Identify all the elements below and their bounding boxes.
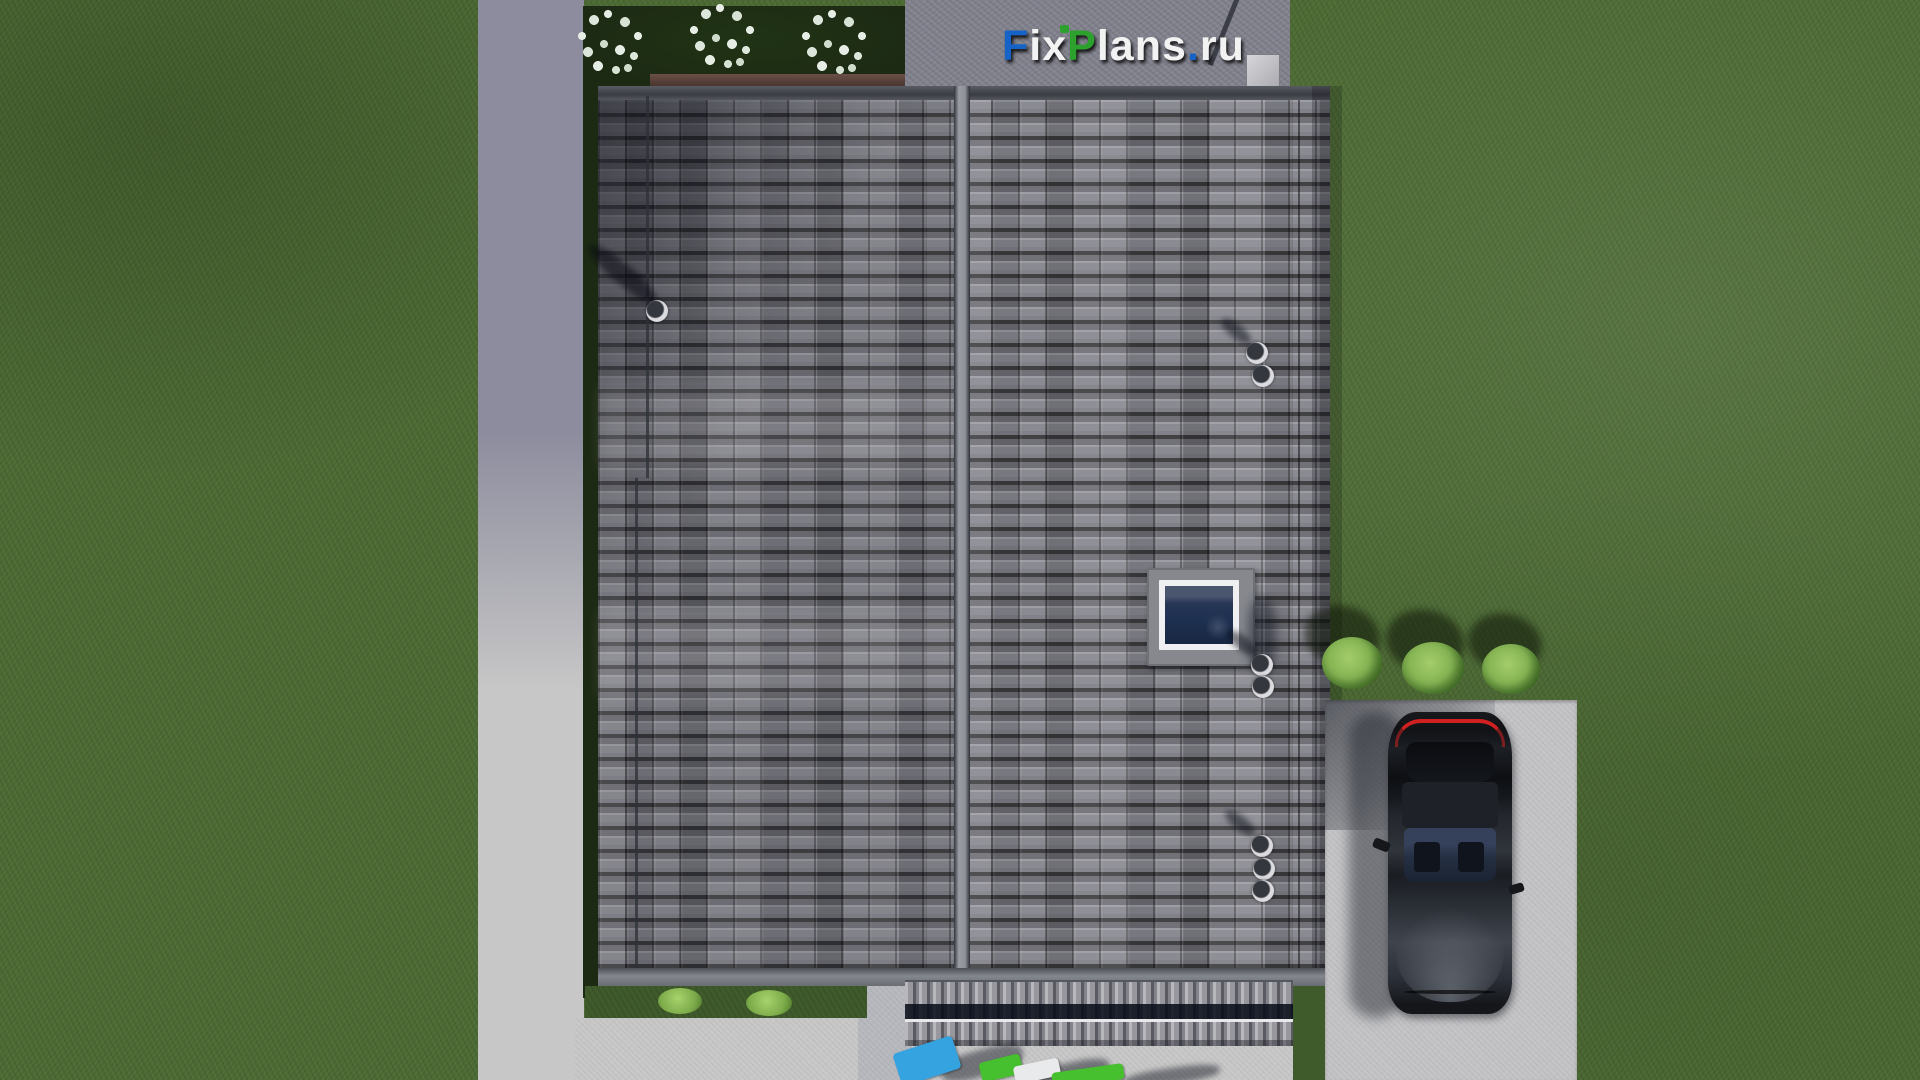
parked-sedan-top-view (1388, 712, 1512, 1014)
roof-vent-pipe (1252, 365, 1274, 387)
logo-letters-lans: lans (1097, 22, 1187, 71)
logo-letter-p: P (1067, 22, 1097, 71)
small-bush (746, 990, 792, 1016)
roof-vent-pipe (1246, 342, 1268, 364)
roof-vent-pipe (646, 300, 668, 322)
white-flower-shrub (794, 6, 880, 82)
car-windshield (1404, 828, 1496, 882)
roof-ridge-line (954, 86, 970, 986)
pergola-roof-shadow (905, 1004, 1293, 1019)
white-flower-shrub (682, 0, 768, 76)
car-roof-panel (1402, 782, 1498, 828)
car-rear-window (1406, 742, 1494, 782)
chimney-top (1246, 54, 1280, 90)
roof-slope-east (964, 100, 1330, 968)
logo-dot: . (1187, 22, 1200, 71)
driveway-vertical-path (478, 0, 584, 1080)
terrace-pergola-slats (905, 980, 1293, 1046)
skylight-glass (1165, 586, 1233, 644)
tiled-roof (598, 86, 1330, 986)
roof-vent-pipe (1251, 654, 1273, 676)
roof-gutter-line (1298, 100, 1300, 968)
skylight-window (1147, 568, 1255, 666)
grass-sliver (1293, 986, 1327, 1080)
skylight-frame (1159, 580, 1239, 650)
roof-light-reflection (598, 386, 958, 466)
aerial-house-render: FixPlans.ru (0, 0, 1920, 1080)
white-flower-shrub (570, 6, 656, 82)
car-hood-highlight (1396, 878, 1504, 1002)
roof-light-reflection (598, 611, 958, 696)
round-bush (1322, 637, 1382, 689)
logo-i-dot-icon (1060, 25, 1069, 33)
roof-vent-pipe (1251, 835, 1273, 857)
south-grass-strip (585, 986, 867, 1018)
logo-letters-ru: ru (1200, 22, 1245, 71)
round-bush (1482, 644, 1540, 694)
roof-vent-pipe (1253, 858, 1275, 880)
terrace-wood-edge (650, 74, 948, 86)
roof-corner-shadow (598, 100, 964, 620)
car-front-bumper (1404, 990, 1496, 994)
roof-vent-pipe (1252, 676, 1274, 698)
logo-letter-f: F (1002, 22, 1029, 71)
pergola-rail (905, 1019, 1293, 1022)
pergola-bottom-edge (905, 1040, 1293, 1046)
round-bush (1402, 642, 1464, 694)
car-seat (1414, 842, 1440, 872)
fixplans-watermark: FixPlans.ru (1002, 22, 1245, 71)
lightning-conductor (635, 478, 638, 968)
car-seat (1458, 842, 1484, 872)
roof-vent-pipe (1252, 880, 1274, 902)
small-bush (658, 988, 702, 1014)
